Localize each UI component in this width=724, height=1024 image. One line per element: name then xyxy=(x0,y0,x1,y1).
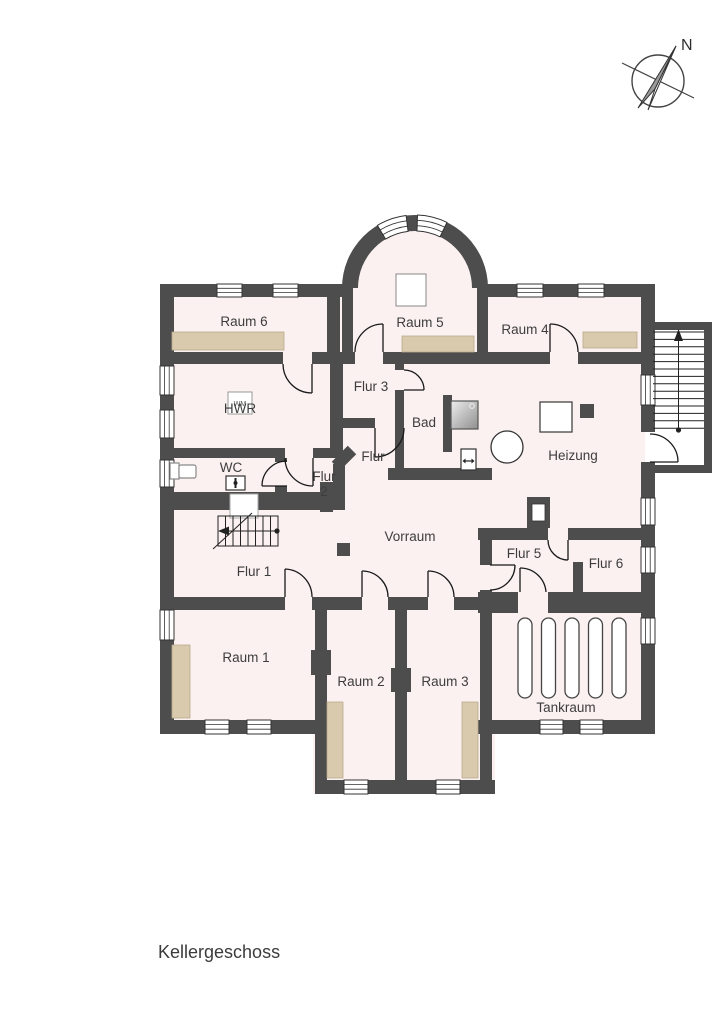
north-label: N xyxy=(681,37,693,54)
floor-plan: WM xyxy=(0,0,724,1024)
shelf-raum5 xyxy=(402,336,474,352)
room-label-raum3: Raum 3 xyxy=(421,674,468,689)
window xyxy=(540,720,563,734)
room-label-flur3: Flur 3 xyxy=(354,379,389,394)
shelf-raum1 xyxy=(172,645,190,718)
chimney-flue xyxy=(532,504,545,521)
window xyxy=(217,284,242,297)
room-label-wc: WC xyxy=(220,460,243,475)
light-well xyxy=(396,274,426,306)
room-label-bad: Bad xyxy=(412,415,436,430)
room-label-vorraum: Vorraum xyxy=(384,529,435,544)
washbasin-icon xyxy=(170,463,196,479)
shelf-raum6 xyxy=(172,332,284,350)
window xyxy=(641,375,655,405)
window xyxy=(578,284,604,297)
flue-block xyxy=(580,404,594,418)
room-label-tankraum: Tankraum xyxy=(536,700,595,715)
room-label-flur2: Flur xyxy=(312,469,336,484)
floor-title: Kellergeschoss xyxy=(158,942,280,962)
room-label-flur6: Flur 6 xyxy=(589,556,624,571)
room-label-raum4: Raum 4 xyxy=(501,322,549,337)
tank-circle-icon xyxy=(491,431,523,463)
boiler-icon xyxy=(540,402,572,432)
shelf-raum2 xyxy=(327,702,343,778)
room-label-flur5: Flur 5 xyxy=(507,546,542,561)
room-label-raum1: Raum 1 xyxy=(222,650,269,665)
room-label-raum5: Raum 5 xyxy=(396,315,443,330)
hatch-icon xyxy=(461,449,476,470)
shower-icon xyxy=(451,401,478,429)
shelf-raum3 xyxy=(462,702,478,778)
window xyxy=(580,720,603,734)
pillar xyxy=(337,543,350,556)
room-label-raum2: Raum 2 xyxy=(337,674,384,689)
compass-rose: N xyxy=(622,37,694,110)
window xyxy=(641,498,655,525)
window xyxy=(160,610,174,640)
window xyxy=(344,780,368,794)
shelf-raum4 xyxy=(583,332,637,348)
room-label-hwr: HWR xyxy=(224,401,256,416)
window xyxy=(273,284,298,297)
room-label-flur1: Flur 1 xyxy=(237,564,272,579)
room-label-flur2-number: 2 xyxy=(320,484,328,499)
window xyxy=(160,410,174,438)
window xyxy=(641,547,655,573)
window xyxy=(160,366,174,395)
window xyxy=(517,284,543,297)
window xyxy=(247,720,271,734)
window xyxy=(205,720,229,734)
toilet-icon xyxy=(226,476,245,490)
room-label-heizung: Heizung xyxy=(548,448,598,463)
room-label-flur: Flur xyxy=(361,449,385,464)
window xyxy=(641,618,655,644)
room-label-raum6: Raum 6 xyxy=(220,314,267,329)
window xyxy=(436,780,460,794)
floorplan-page: WM xyxy=(0,0,724,1024)
